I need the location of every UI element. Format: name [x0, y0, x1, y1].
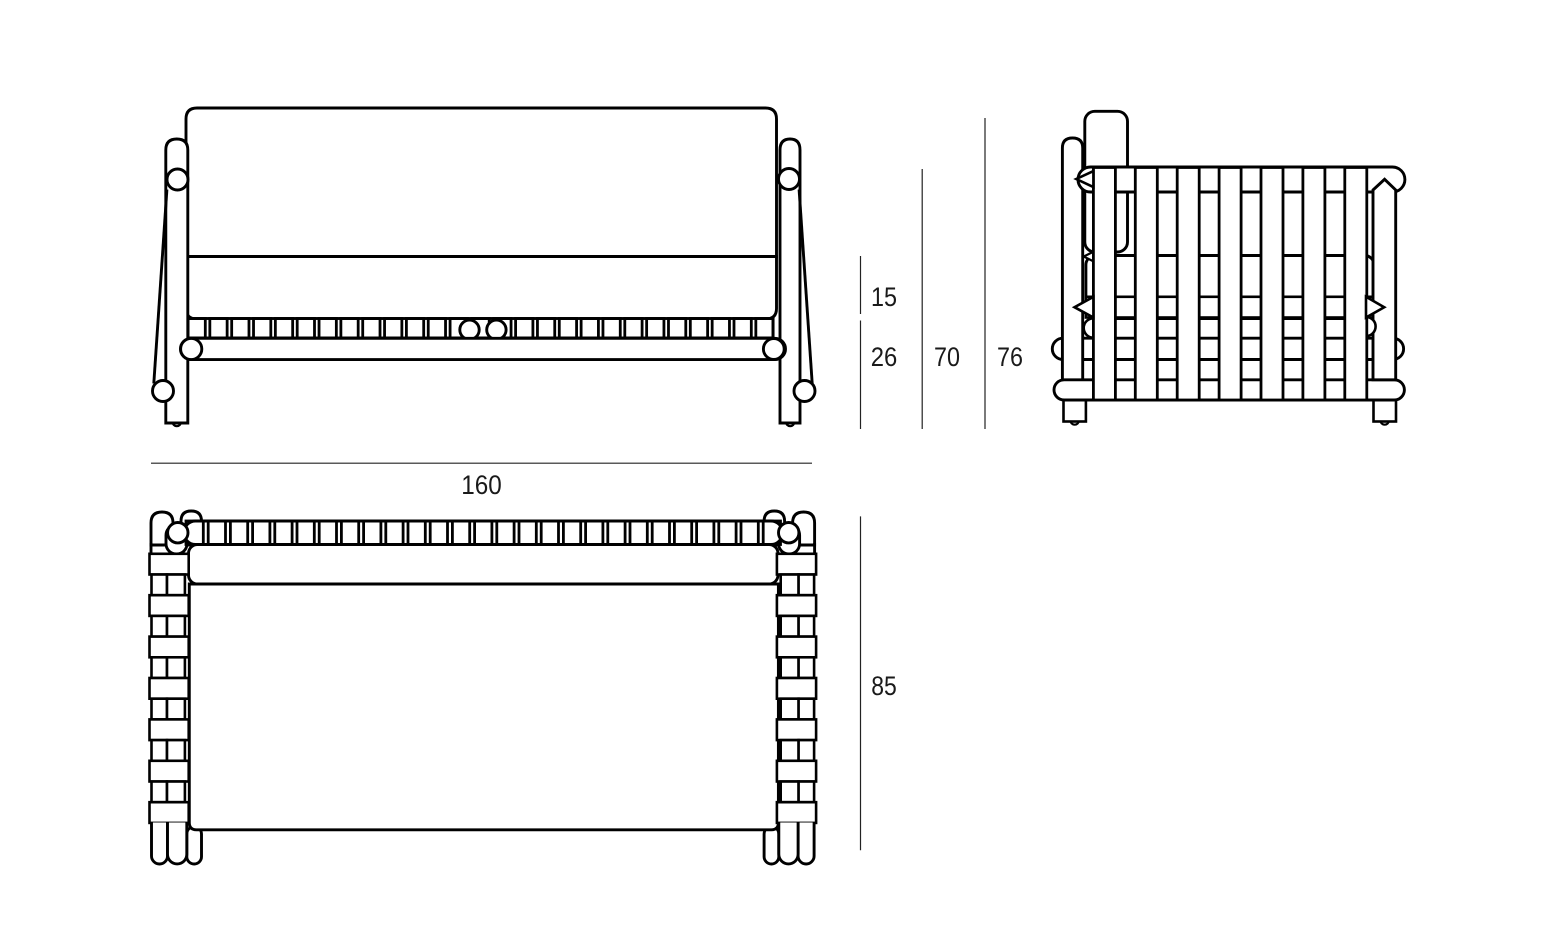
svg-text:85: 85	[871, 671, 897, 701]
svg-text:15: 15	[871, 282, 897, 312]
svg-text:76: 76	[997, 342, 1023, 372]
svg-text:160: 160	[461, 470, 502, 500]
svg-text:70: 70	[934, 342, 960, 372]
svg-text:26: 26	[871, 342, 898, 372]
